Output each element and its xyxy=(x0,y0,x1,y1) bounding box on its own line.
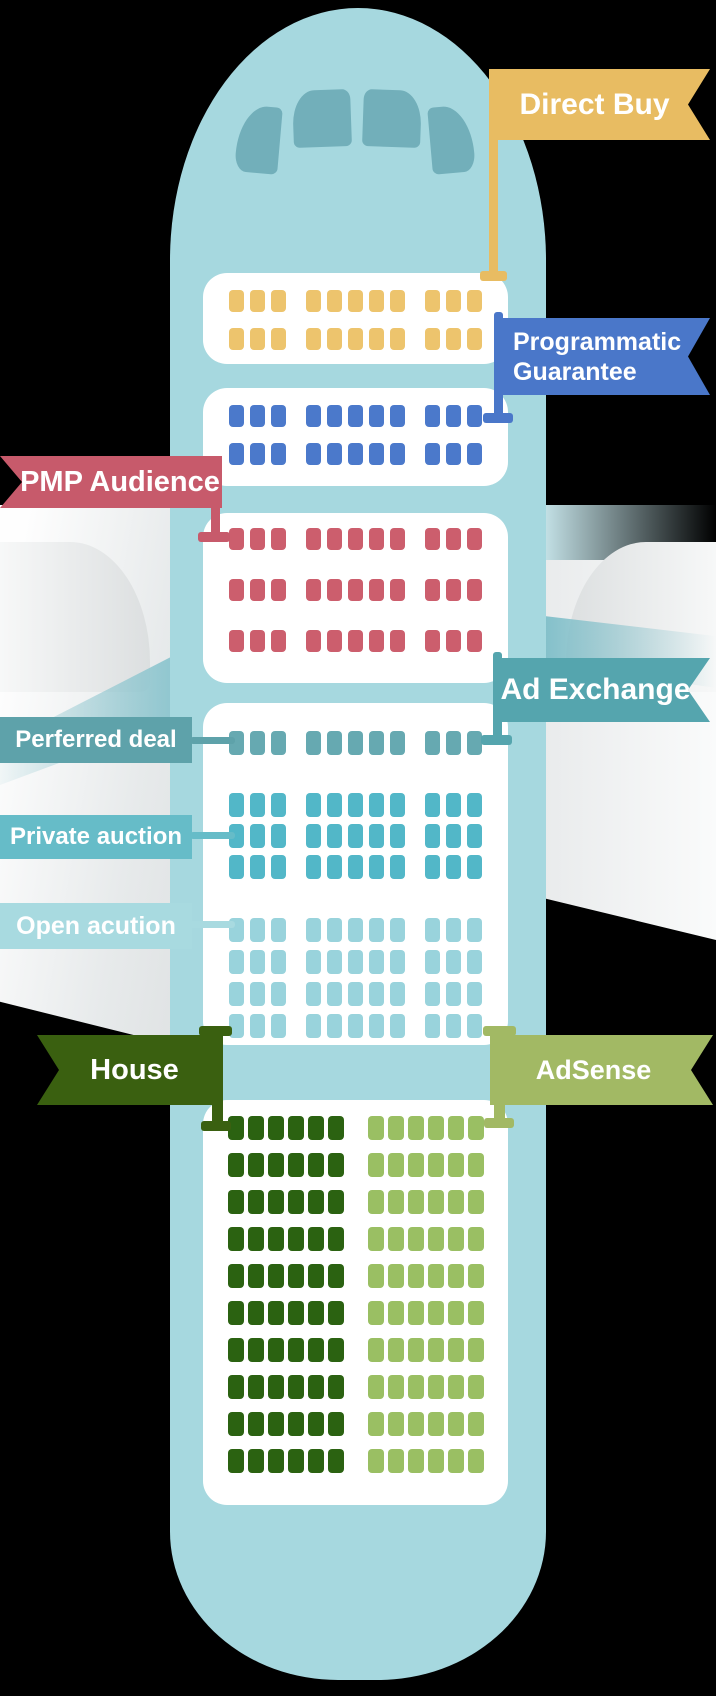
seat xyxy=(327,290,342,312)
seat xyxy=(229,579,244,601)
seat xyxy=(390,528,405,550)
seat xyxy=(306,950,321,974)
seat xyxy=(425,443,440,465)
direct-buy-flagpole-cap xyxy=(480,271,507,281)
seat xyxy=(425,950,440,974)
seat xyxy=(390,579,405,601)
seat xyxy=(268,1301,284,1325)
seat xyxy=(248,1412,264,1436)
seat xyxy=(388,1153,404,1177)
seat xyxy=(468,1338,484,1362)
seat xyxy=(306,290,321,312)
seat xyxy=(306,855,321,879)
seat xyxy=(368,1264,384,1288)
seat xyxy=(271,443,286,465)
seat xyxy=(327,328,342,350)
seat xyxy=(446,918,461,942)
seat xyxy=(368,1449,384,1473)
seat xyxy=(308,1338,324,1362)
seat xyxy=(228,1301,244,1325)
seat xyxy=(348,1014,363,1038)
seat xyxy=(268,1412,284,1436)
seat xyxy=(446,579,461,601)
seat xyxy=(268,1375,284,1399)
seat xyxy=(368,1190,384,1214)
seat xyxy=(250,290,265,312)
seat xyxy=(425,982,440,1006)
seat xyxy=(425,528,440,550)
seat xyxy=(288,1338,304,1362)
label-preferred-deal: Perferred deal xyxy=(0,717,192,763)
seat xyxy=(467,982,482,1006)
seat xyxy=(369,855,384,879)
seat xyxy=(271,579,286,601)
seat xyxy=(425,855,440,879)
seat xyxy=(228,1338,244,1362)
flag-adsense: AdSense xyxy=(490,1035,713,1105)
seat xyxy=(250,405,265,427)
seat xyxy=(467,793,482,817)
seat xyxy=(408,1338,424,1362)
seat xyxy=(248,1153,264,1177)
programmatic-flagpole-cap xyxy=(483,413,513,423)
seat xyxy=(425,405,440,427)
seat xyxy=(448,1190,464,1214)
seat xyxy=(268,1153,284,1177)
seat xyxy=(446,982,461,1006)
seat xyxy=(467,918,482,942)
seat xyxy=(327,950,342,974)
seat-row xyxy=(203,1014,508,1038)
seat xyxy=(327,982,342,1006)
seat xyxy=(467,443,482,465)
seat xyxy=(288,1301,304,1325)
seat xyxy=(308,1264,324,1288)
seat xyxy=(448,1153,464,1177)
seat xyxy=(248,1264,264,1288)
seat xyxy=(428,1227,444,1251)
seat xyxy=(308,1301,324,1325)
seat xyxy=(369,579,384,601)
seat xyxy=(390,793,405,817)
seat xyxy=(271,982,286,1006)
seat xyxy=(369,290,384,312)
seat xyxy=(467,824,482,848)
seat xyxy=(250,824,265,848)
seat xyxy=(248,1375,264,1399)
seat xyxy=(348,328,363,350)
seat xyxy=(250,528,265,550)
seat xyxy=(388,1449,404,1473)
seat-row xyxy=(203,1412,508,1436)
seat xyxy=(425,579,440,601)
seat xyxy=(390,630,405,652)
seat xyxy=(306,982,321,1006)
seat xyxy=(468,1227,484,1251)
seat xyxy=(428,1375,444,1399)
seat xyxy=(268,1449,284,1473)
seat xyxy=(408,1116,424,1140)
seat xyxy=(306,405,321,427)
seat xyxy=(348,405,363,427)
seat xyxy=(425,630,440,652)
flag-pmp-audience-label: PMP Audience xyxy=(20,466,220,499)
seat xyxy=(327,443,342,465)
seat xyxy=(467,290,482,312)
cockpit-window-icon xyxy=(292,89,352,148)
seat xyxy=(228,1153,244,1177)
seat xyxy=(388,1227,404,1251)
house-flagpole-cap xyxy=(199,1026,232,1036)
seat xyxy=(348,290,363,312)
seat xyxy=(271,793,286,817)
seat xyxy=(288,1412,304,1436)
flag-direct-buy-label: Direct Buy xyxy=(519,88,669,122)
seat xyxy=(271,918,286,942)
flag-house-label: House xyxy=(90,1054,179,1087)
seat xyxy=(408,1375,424,1399)
seat xyxy=(348,579,363,601)
label-open-auction-text: Open acution xyxy=(16,912,176,941)
seat xyxy=(348,793,363,817)
seat xyxy=(388,1412,404,1436)
seat xyxy=(327,405,342,427)
flag-programmatic-line1: Programmatic xyxy=(513,327,681,357)
seat xyxy=(348,630,363,652)
seat-row xyxy=(203,855,508,879)
seat xyxy=(388,1375,404,1399)
seat xyxy=(271,950,286,974)
seat xyxy=(250,982,265,1006)
seat-row xyxy=(203,405,508,427)
airplane-ad-channels-diagram: Direct Buy Programmatic Guarantee PMP Au… xyxy=(0,0,716,1696)
seat xyxy=(327,579,342,601)
seat xyxy=(428,1338,444,1362)
seat xyxy=(467,731,482,755)
seat xyxy=(428,1449,444,1473)
seat xyxy=(369,918,384,942)
seat xyxy=(268,1264,284,1288)
seat xyxy=(425,1014,440,1038)
seat xyxy=(229,328,244,350)
seat xyxy=(390,290,405,312)
seat xyxy=(271,528,286,550)
seat xyxy=(467,630,482,652)
seat xyxy=(250,579,265,601)
seat xyxy=(348,528,363,550)
cockpit-window-icon xyxy=(362,89,422,148)
seat xyxy=(408,1301,424,1325)
seat-row xyxy=(203,731,508,755)
seat xyxy=(229,630,244,652)
seat xyxy=(327,918,342,942)
seat xyxy=(388,1190,404,1214)
cockpit-window-icon xyxy=(427,104,476,174)
seat xyxy=(250,793,265,817)
seat xyxy=(250,443,265,465)
seat xyxy=(390,443,405,465)
seat xyxy=(368,1301,384,1325)
seat xyxy=(390,731,405,755)
seat xyxy=(448,1116,464,1140)
seat xyxy=(229,950,244,974)
seat xyxy=(425,328,440,350)
seat xyxy=(308,1190,324,1214)
seat-row xyxy=(203,579,508,601)
seat xyxy=(308,1449,324,1473)
seat xyxy=(328,1116,344,1140)
seat xyxy=(288,1227,304,1251)
seat xyxy=(328,1227,344,1251)
seat xyxy=(271,328,286,350)
seat xyxy=(348,824,363,848)
adsense-flagpole-cap xyxy=(483,1026,516,1036)
seat xyxy=(229,982,244,1006)
private-auction-connector-line xyxy=(190,832,235,839)
seat xyxy=(229,793,244,817)
pmp-flagpole-cap xyxy=(198,532,230,542)
seat xyxy=(425,824,440,848)
seat xyxy=(368,1153,384,1177)
seat xyxy=(408,1264,424,1288)
ad-exchange-flagpole-cap xyxy=(481,735,512,745)
seat xyxy=(446,731,461,755)
seat xyxy=(248,1449,264,1473)
seat xyxy=(390,328,405,350)
seat xyxy=(428,1190,444,1214)
seat xyxy=(390,1014,405,1038)
seat xyxy=(446,630,461,652)
flag-pmp-audience: PMP Audience xyxy=(0,456,222,508)
flag-programmatic-line2: Guarantee xyxy=(513,357,681,387)
seat xyxy=(446,405,461,427)
seat-row xyxy=(203,793,508,817)
seat-row xyxy=(203,982,508,1006)
seat xyxy=(327,528,342,550)
seat-row xyxy=(203,328,508,350)
seat xyxy=(369,405,384,427)
seat xyxy=(428,1116,444,1140)
seat xyxy=(288,1153,304,1177)
seat xyxy=(467,855,482,879)
seat xyxy=(390,405,405,427)
seat xyxy=(228,1375,244,1399)
seat-row xyxy=(203,824,508,848)
seat xyxy=(271,1014,286,1038)
seat xyxy=(306,328,321,350)
seat-row xyxy=(203,1227,508,1251)
label-open-auction: Open acution xyxy=(0,903,192,949)
seat xyxy=(348,855,363,879)
seat xyxy=(390,918,405,942)
seat xyxy=(268,1190,284,1214)
seat xyxy=(308,1116,324,1140)
flag-house: House xyxy=(37,1035,220,1105)
seat xyxy=(328,1449,344,1473)
seat xyxy=(468,1153,484,1177)
seat xyxy=(390,824,405,848)
seat-row xyxy=(203,1449,508,1473)
seat xyxy=(369,824,384,848)
seat xyxy=(271,855,286,879)
seat xyxy=(468,1190,484,1214)
flag-direct-buy: Direct Buy xyxy=(489,69,710,140)
seat xyxy=(369,1014,384,1038)
seat xyxy=(228,1412,244,1436)
seat xyxy=(288,1190,304,1214)
seat xyxy=(467,528,482,550)
seat xyxy=(228,1264,244,1288)
seat xyxy=(248,1301,264,1325)
seat-row xyxy=(203,1153,508,1177)
seat xyxy=(467,1014,482,1038)
seat xyxy=(229,528,244,550)
seat xyxy=(448,1449,464,1473)
seat xyxy=(446,950,461,974)
seat xyxy=(369,328,384,350)
seat xyxy=(268,1338,284,1362)
seat xyxy=(229,290,244,312)
seat xyxy=(408,1153,424,1177)
seat xyxy=(250,855,265,879)
seat xyxy=(368,1338,384,1362)
seat xyxy=(468,1301,484,1325)
seat xyxy=(328,1412,344,1436)
seat xyxy=(271,630,286,652)
seat-row xyxy=(203,1190,508,1214)
seat xyxy=(448,1264,464,1288)
seat xyxy=(448,1227,464,1251)
seat xyxy=(327,824,342,848)
seat xyxy=(390,982,405,1006)
seat xyxy=(229,405,244,427)
seat xyxy=(228,1227,244,1251)
cockpit-windows xyxy=(237,90,473,185)
seat xyxy=(348,443,363,465)
preferred-deal-connector-line xyxy=(190,737,235,744)
seat xyxy=(327,630,342,652)
seat xyxy=(446,824,461,848)
cabin-section-direct-buy xyxy=(203,273,508,364)
seat-row xyxy=(203,1264,508,1288)
seat xyxy=(467,579,482,601)
seat xyxy=(250,1014,265,1038)
seat xyxy=(306,793,321,817)
seat xyxy=(448,1412,464,1436)
seat xyxy=(468,1264,484,1288)
seat xyxy=(408,1449,424,1473)
seat xyxy=(327,1014,342,1038)
seat xyxy=(308,1227,324,1251)
seat xyxy=(448,1338,464,1362)
seat xyxy=(288,1375,304,1399)
seat xyxy=(250,328,265,350)
seat xyxy=(271,405,286,427)
seat xyxy=(428,1412,444,1436)
seat xyxy=(328,1153,344,1177)
seat xyxy=(369,528,384,550)
seat xyxy=(446,1014,461,1038)
seat xyxy=(369,950,384,974)
seat xyxy=(408,1190,424,1214)
seat xyxy=(306,579,321,601)
label-private-auction-text: Private auction xyxy=(10,823,182,851)
seat xyxy=(368,1375,384,1399)
seat xyxy=(467,950,482,974)
seat xyxy=(306,630,321,652)
seat-row xyxy=(203,290,508,312)
seat xyxy=(328,1190,344,1214)
seat xyxy=(327,855,342,879)
seat xyxy=(328,1375,344,1399)
seat xyxy=(248,1116,264,1140)
seat-row xyxy=(203,630,508,652)
seat xyxy=(348,982,363,1006)
seat-row xyxy=(203,443,508,465)
seat xyxy=(369,793,384,817)
seat xyxy=(369,630,384,652)
seat xyxy=(468,1375,484,1399)
seat xyxy=(408,1227,424,1251)
cabin-section-house-adsense xyxy=(203,1100,508,1505)
seat xyxy=(308,1153,324,1177)
seat xyxy=(250,950,265,974)
label-preferred-deal-text: Perferred deal xyxy=(15,726,176,754)
seat xyxy=(425,290,440,312)
seat xyxy=(348,950,363,974)
seat xyxy=(428,1264,444,1288)
seat xyxy=(448,1301,464,1325)
seat xyxy=(268,1227,284,1251)
seat xyxy=(306,731,321,755)
seat xyxy=(248,1338,264,1362)
adsense-flagpole-cap xyxy=(484,1118,514,1128)
seat xyxy=(271,290,286,312)
cabin-section-pmp-audience xyxy=(203,513,508,683)
seat xyxy=(425,731,440,755)
seat xyxy=(308,1412,324,1436)
seat xyxy=(390,950,405,974)
seat xyxy=(228,1449,244,1473)
seat xyxy=(428,1153,444,1177)
seat xyxy=(288,1449,304,1473)
seat xyxy=(229,443,244,465)
flag-programmatic-guarantee: Programmatic Guarantee xyxy=(495,318,710,395)
seat xyxy=(248,1190,264,1214)
seat xyxy=(390,855,405,879)
flag-adsense-label: AdSense xyxy=(536,1055,652,1086)
seat xyxy=(446,528,461,550)
seat xyxy=(369,731,384,755)
seat xyxy=(271,731,286,755)
seat xyxy=(425,918,440,942)
seat xyxy=(288,1116,304,1140)
seat xyxy=(327,731,342,755)
seat xyxy=(306,1014,321,1038)
seat xyxy=(388,1264,404,1288)
seat xyxy=(368,1412,384,1436)
house-flagpole-cap xyxy=(201,1121,231,1131)
seat xyxy=(428,1301,444,1325)
seat xyxy=(468,1116,484,1140)
seat xyxy=(306,528,321,550)
seat xyxy=(468,1412,484,1436)
seat xyxy=(308,1375,324,1399)
seat xyxy=(467,328,482,350)
seat xyxy=(306,918,321,942)
seat xyxy=(228,1190,244,1214)
seat-row xyxy=(203,1338,508,1362)
